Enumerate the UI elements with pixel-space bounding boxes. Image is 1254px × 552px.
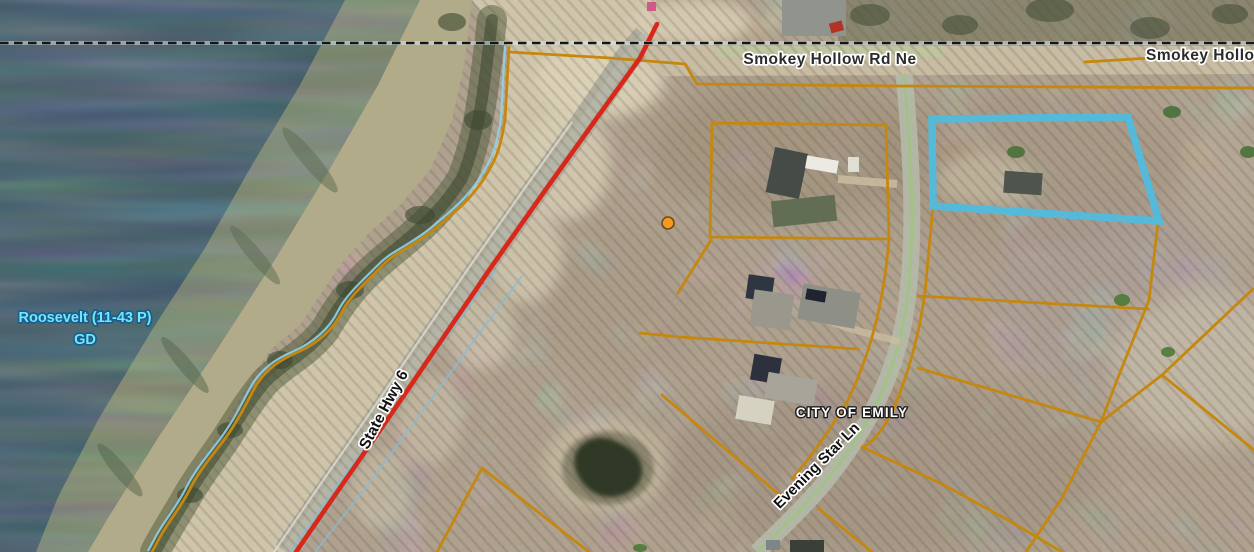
point-marker[interactable] [662,217,674,229]
house [750,289,795,330]
white-car [848,157,859,172]
aerial-map: Smokey Hollow Rd Ne Smokey Hollow Roosev… [0,0,1254,552]
house [790,540,824,552]
lake-label-designation: GD [74,332,96,348]
pond [562,431,654,505]
shed [1003,171,1042,196]
road-label-smokey-hollow-right: Smokey Hollow [1146,47,1254,64]
city-label: CITY OF EMILY [796,405,908,420]
top-tree-strip [838,0,1254,44]
pink-object [647,2,656,11]
road-label-smokey-hollow: Smokey Hollow Rd Ne [743,51,916,68]
lake-label-name: Roosevelt (11-43 P) [19,310,152,326]
structure [766,540,780,550]
map-canvas[interactable]: Smokey Hollow Rd Ne Smokey Hollow Roosev… [0,0,1254,552]
